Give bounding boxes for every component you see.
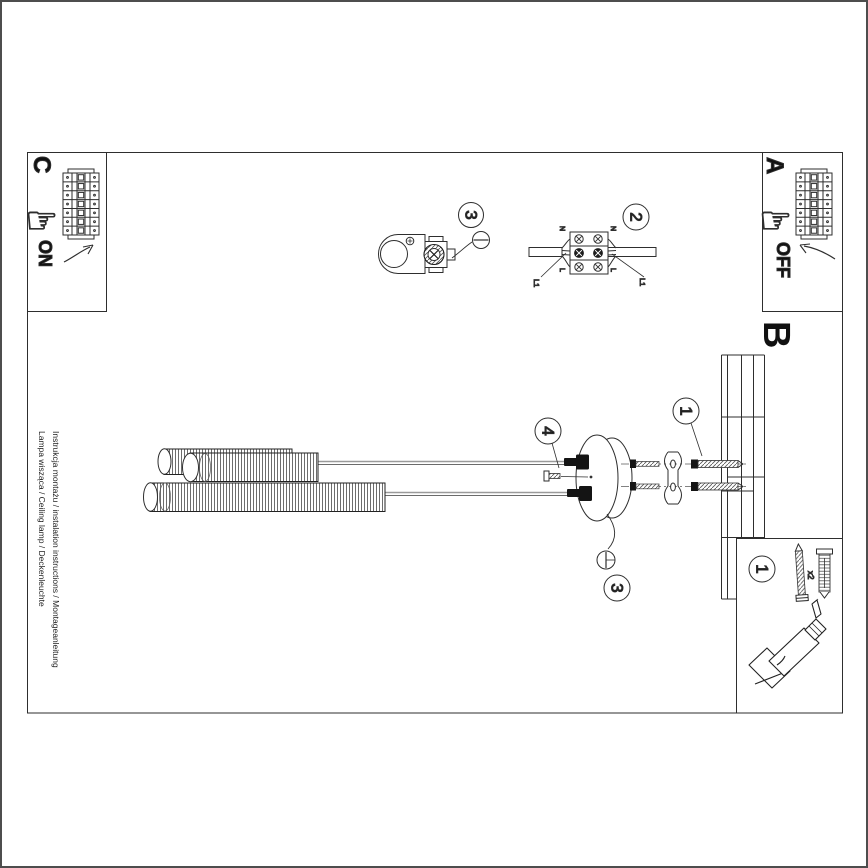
wall-anchors — [691, 460, 743, 492]
terminal-l-left: L — [558, 268, 565, 272]
flat-screwdriver-icon — [597, 551, 615, 569]
section-a-label: A — [761, 157, 788, 174]
footer-title-line1: Instrukcja montażu / instalation instruc… — [51, 431, 61, 668]
lamp-tube-lower — [144, 483, 386, 512]
instruction-drawing: C ☞ ON A ☞ OFF B 2 — [0, 0, 868, 868]
section-b-label: B — [755, 321, 797, 348]
flat-screwdriver-icon — [473, 232, 490, 249]
pointing-hand-icon: ☞ — [25, 199, 58, 242]
supply-cable — [529, 248, 562, 257]
step-2-terminal-diagram: 2 N N L L L1 L1 — [529, 204, 656, 287]
step-3-clamp-diagram: 3 — [379, 203, 490, 274]
section-c-switch-on: C ☞ ON — [25, 153, 107, 312]
wire-l1-right-label: L1 — [638, 278, 647, 286]
mounting-bracket — [665, 452, 682, 504]
lamp-cable — [608, 248, 656, 257]
step-1-number: 1 — [677, 406, 696, 415]
step-3-number: 3 — [608, 583, 627, 592]
instruction-sheet-page: C ☞ ON A ☞ OFF B 2 — [0, 0, 868, 868]
mounting-hardware: 1 — [621, 398, 748, 504]
breaker-panel-icon — [63, 169, 99, 239]
ceiling-canopy — [576, 435, 632, 521]
switch-off-label: OFF — [773, 242, 793, 278]
lamp-tube-front — [183, 453, 319, 482]
pointing-hand-icon: ☞ — [759, 199, 792, 242]
step-4-number: 4 — [539, 426, 558, 435]
step-3-number: 3 — [462, 210, 481, 219]
pendant-lamp-assembly: 4 3 — [144, 418, 633, 601]
parts-box: 1 x2 — [737, 539, 843, 714]
quantity-label: x2 — [806, 571, 815, 580]
wall-plug-icon — [817, 549, 833, 598]
section-a-switch-off: A ☞ OFF — [759, 153, 843, 312]
footer-title-line2: Lampa wisząca / Ceiling lamp / Deckenleu… — [37, 431, 47, 607]
parts-badge-number: 1 — [753, 564, 772, 573]
terminal-n-right: N — [609, 226, 616, 231]
switch-on-label: ON — [35, 240, 55, 267]
wire-l1-left-label: L1 — [532, 279, 541, 287]
breaker-panel-icon — [796, 169, 832, 239]
mounting-screws — [630, 460, 659, 491]
terminal-n-left: N — [558, 226, 565, 231]
section-c-label: C — [28, 156, 55, 173]
terminal-l-right: L — [609, 268, 616, 272]
step-2-number: 2 — [627, 212, 646, 221]
page-outer-border — [1, 1, 867, 867]
